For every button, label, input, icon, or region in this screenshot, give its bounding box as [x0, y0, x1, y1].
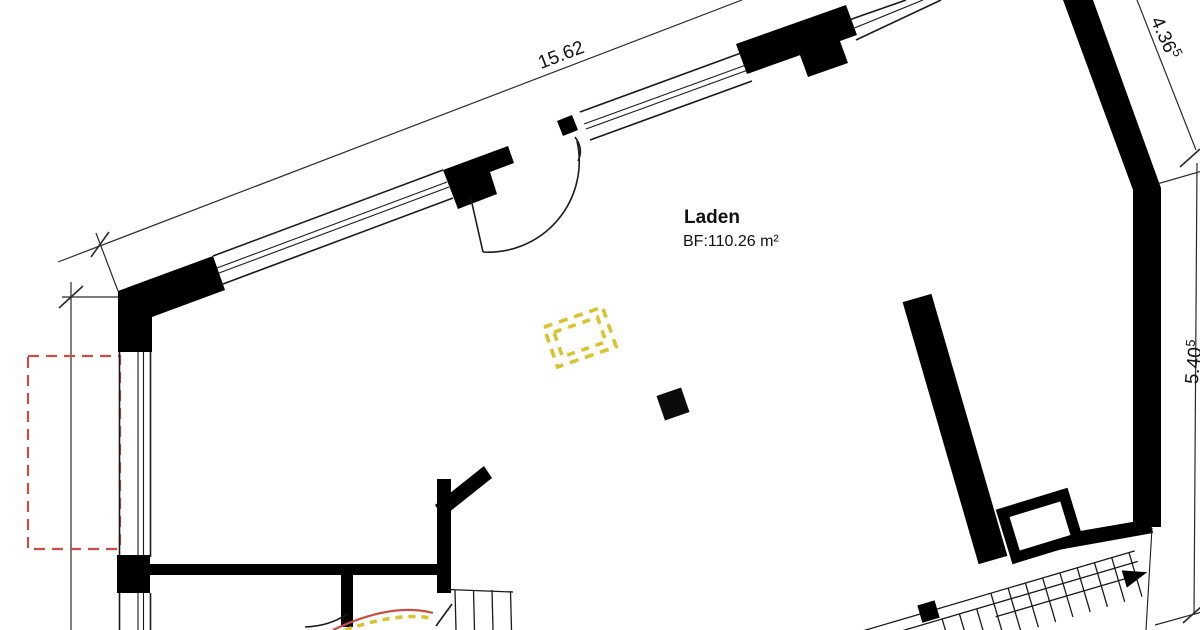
- dimension-left: [59, 282, 118, 630]
- interior-walls: [148, 466, 492, 627]
- window-band-5: [120, 593, 151, 630]
- wall-block: [117, 555, 150, 593]
- interior-wall-horizontal: [148, 564, 438, 575]
- wall-corner-pier: [118, 256, 225, 352]
- door-leaf: [471, 199, 483, 252]
- extension-line: [96, 233, 118, 291]
- window-band-1: [213, 170, 453, 284]
- exterior-wall-left: [117, 352, 151, 630]
- room-name: Laden: [684, 207, 740, 228]
- dimension-label-top: 15.62: [535, 37, 587, 74]
- door-post: [557, 115, 578, 136]
- stair-boundary-line: [1146, 528, 1152, 630]
- column: [656, 387, 689, 420]
- door-jamb-pier: [443, 146, 514, 209]
- window-band-4: [120, 352, 151, 557]
- dimension-label-right: 5.405: [1178, 339, 1200, 385]
- yellow-marker-inner: [554, 317, 606, 357]
- stairs-lower: [448, 590, 513, 630]
- dimension-line: [58, 0, 742, 262]
- extension-line: [1155, 612, 1200, 625]
- dimension-right: 5.405: [1155, 163, 1200, 625]
- stair-post: [917, 600, 939, 622]
- floor-plan: 15.62 4.365 5.405: [0, 0, 1200, 630]
- interior-wall-stub: [341, 571, 353, 627]
- room-area: BF:110.26 m²: [683, 233, 779, 250]
- room-label-group: Laden BF:110.26 m²: [683, 207, 779, 250]
- dimension-top: 15.62: [58, 0, 742, 291]
- door-leaf: [436, 604, 452, 626]
- interior-wall-diagonal: [917, 298, 993, 560]
- window-band-2: [580, 53, 752, 140]
- yellow-marker: [544, 307, 616, 367]
- exterior-wall-top: [118, 0, 941, 352]
- red-dashed-zone: [28, 356, 120, 549]
- window-band-3: [849, 0, 941, 40]
- dimension-line: [1194, 163, 1197, 615]
- stair-direction-arrow: [1122, 564, 1150, 588]
- dimension-label-upper-right: 4.365: [1146, 12, 1186, 62]
- dimension-tick: [91, 232, 109, 257]
- exterior-wall-right: [1063, 0, 1161, 527]
- door-swing-arc-bottom: [305, 614, 347, 627]
